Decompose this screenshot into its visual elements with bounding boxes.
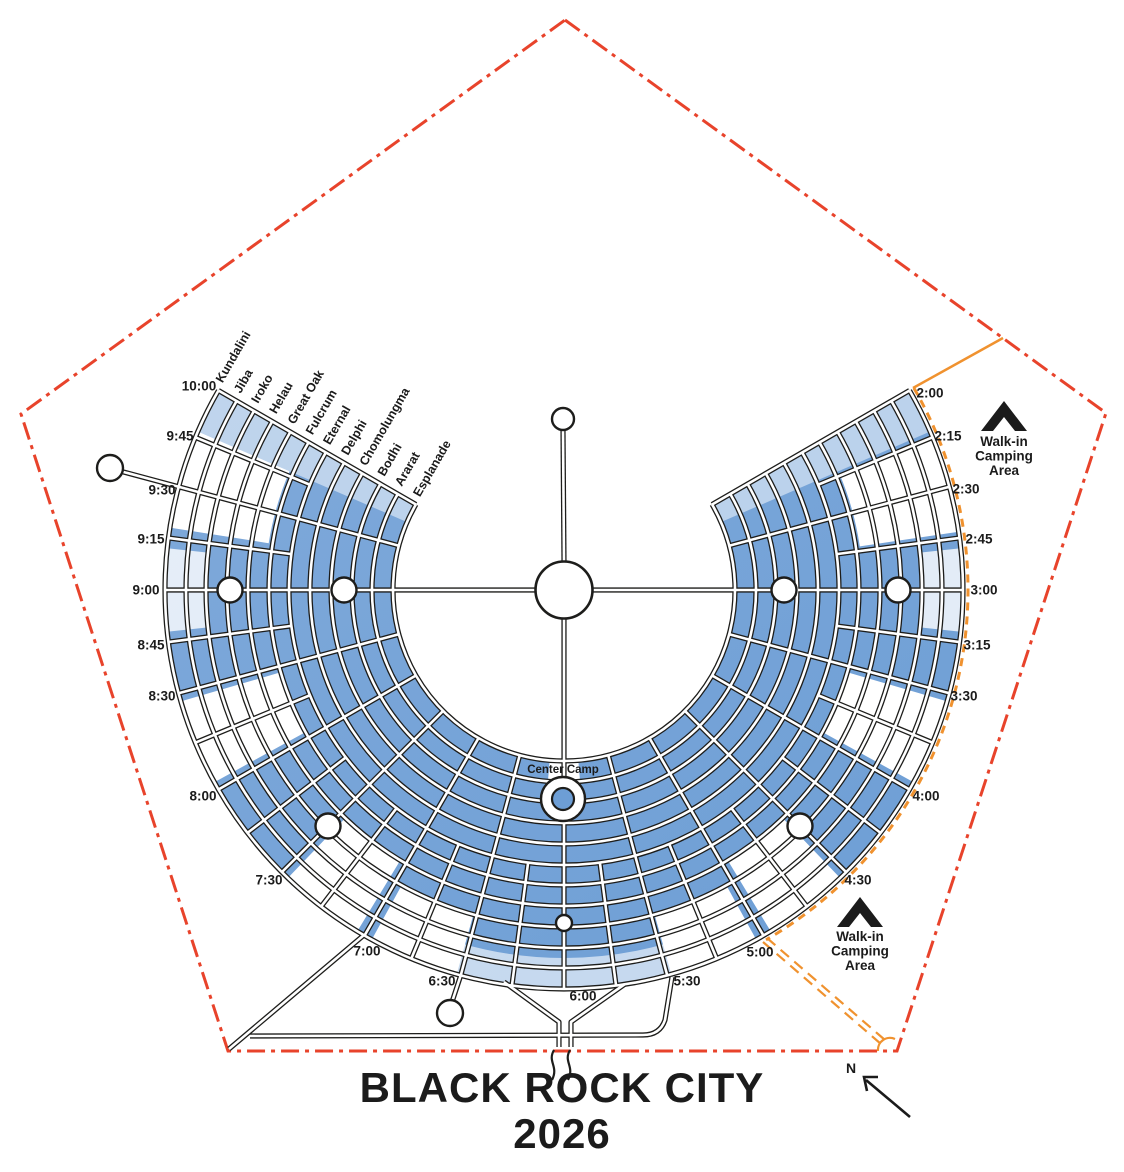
plaza-circle-6 — [556, 915, 572, 931]
center-camp-label: Center Camp — [527, 764, 599, 776]
walk-in-line-north — [913, 338, 1003, 388]
time-label-3-15: 3:15 — [963, 638, 991, 653]
time-label-3-30: 3:30 — [950, 689, 977, 704]
promenade-12-00 — [563, 430, 564, 562]
the-man-circle — [536, 562, 593, 619]
walk-in-label-line: Camping — [831, 944, 889, 959]
plaza-circle-4 — [316, 814, 341, 839]
time-label-2-15: 2:15 — [934, 429, 962, 444]
black-rock-city-map-page: Center Camp10:009:459:309:159:008:458:30… — [0, 0, 1124, 1172]
walk-in-label-line: Walk-in — [980, 434, 1028, 449]
road-7-00-extension — [229, 935, 364, 1049]
plaza-circle-2 — [772, 578, 797, 603]
portal-circle-1 — [437, 1000, 463, 1026]
time-label-8-00: 8:00 — [189, 789, 216, 804]
map-title: BLACK ROCK CITY — [0, 1066, 1124, 1110]
walk-in-label-line: Camping — [975, 449, 1033, 464]
time-label-8-45: 8:45 — [137, 638, 165, 653]
plaza-circle-3 — [886, 578, 911, 603]
time-label-2-45: 2:45 — [965, 532, 993, 547]
walk-in-label-line: Area — [989, 463, 1020, 478]
walk-in-camping-area-1: Walk-inCampingArea — [831, 897, 889, 973]
plaza-circle-5 — [788, 814, 813, 839]
time-label-2-00: 2:00 — [916, 386, 943, 401]
time-label-9-00: 9:00 — [132, 583, 159, 598]
time-label-6-00: 6:00 — [569, 989, 596, 1004]
plaza-circle-1 — [218, 578, 243, 603]
walk-in-label-line: Walk-in — [836, 929, 884, 944]
time-label-5-30: 5:30 — [673, 974, 700, 989]
time-label-9-45: 9:45 — [166, 429, 194, 444]
time-label-6-30: 6:30 — [428, 974, 455, 989]
time-label-8-30: 8:30 — [148, 689, 175, 704]
time-label-9-30: 9:30 — [148, 483, 175, 498]
map-year: 2026 — [0, 1112, 1124, 1156]
portal-circle-0 — [97, 455, 123, 481]
tent-icon — [981, 401, 1027, 431]
brc-map-svg: Center Camp10:009:459:309:159:008:458:30… — [0, 0, 1124, 1172]
time-label-7-00: 7:00 — [353, 944, 380, 959]
center-camp-inner-circle — [552, 788, 574, 810]
temple-circle — [552, 408, 574, 430]
time-label-5-00: 5:00 — [746, 945, 773, 960]
time-label-10-00: 10:00 — [182, 379, 217, 394]
plaza-circle-0 — [332, 578, 357, 603]
time-label-3-00: 3:00 — [970, 583, 997, 598]
street-name-esplanade: Esplanade — [410, 438, 453, 499]
time-label-2-30: 2:30 — [952, 482, 979, 497]
corner-fan — [878, 1038, 895, 1051]
time-label-9-15: 9:15 — [137, 532, 165, 547]
tent-icon — [837, 897, 883, 927]
walk-in-label-line: Area — [845, 958, 876, 973]
time-label-4-00: 4:00 — [912, 789, 939, 804]
walk-in-camping-area-0: Walk-inCampingArea — [975, 401, 1033, 478]
time-label-4-30: 4:30 — [844, 873, 871, 888]
time-label-7-30: 7:30 — [255, 873, 282, 888]
